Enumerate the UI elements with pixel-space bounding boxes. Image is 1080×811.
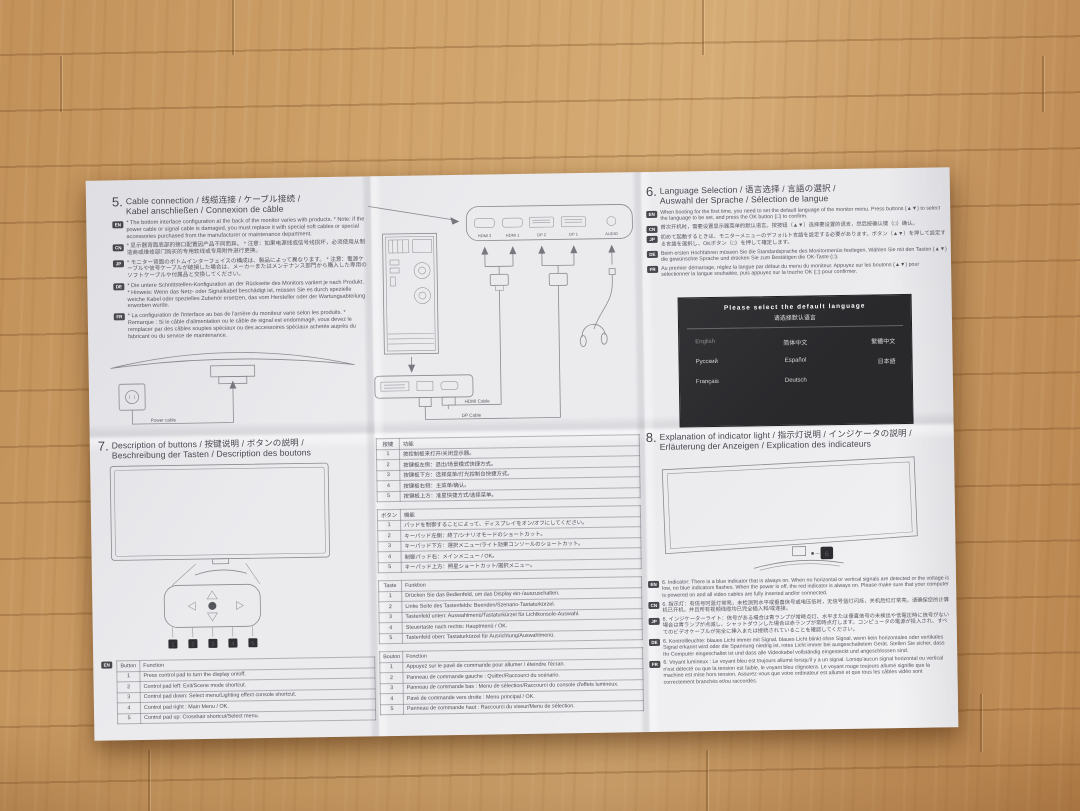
cell-number: 4 — [117, 703, 140, 714]
up-arrows — [481, 245, 615, 275]
plank-joint — [702, 0, 704, 55]
lang-badge-jp: JP — [649, 617, 660, 624]
section-description-of-buttons: 7. Description of buttons / 按键说明 / ボタンの説… — [98, 436, 377, 736]
pad-up-arrow-icon — [207, 591, 217, 599]
lang-badge-jp: JP — [113, 260, 124, 267]
paragraph-text: * The bottom interface configuration at … — [126, 216, 366, 240]
cell-number: 3 — [117, 692, 140, 703]
photo-of-manual-on-wood-floor: 5. Cable connection / 线缆连接 / ケーブル接続 / Ka… — [0, 0, 1080, 811]
monitor-with-indicator-drawing: 6 — [646, 451, 948, 574]
pad-center-button-icon — [208, 602, 216, 610]
monitor-screen-outline — [662, 457, 917, 554]
paragraph-text: * モニター背面のボトムインターフェイスの構成は、製品によって異なります。 * … — [127, 256, 367, 280]
paragraph-text: 6. インジケーターライト：信号がある場合は青ランプが常時点灯、水平または垂直信… — [663, 612, 951, 636]
section-title-line2: Kabel anschließen / Connexion de câble — [126, 204, 284, 216]
instruction-leaflet: 5. Cable connection / 线缆连接 / ケーブル接続 / Ka… — [86, 167, 959, 741]
up-arrow-icon — [229, 380, 236, 388]
paragraph-text: 6. 指示灯：有信号时蓝灯常亮，未检测到水平或垂直信号或电压低时，无信号蓝灯闪烁… — [662, 597, 950, 614]
hdmi2-port-icon — [474, 218, 494, 227]
language-option-german: Deutsch — [762, 377, 829, 384]
section-title-line2: Auswahl der Sprache / Sélection de langu… — [660, 193, 829, 206]
cell-number: 3 — [379, 612, 402, 623]
paragraph-fr: FRAu premier démarrage, réglez la langue… — [647, 261, 947, 279]
language-option-english: English — [695, 338, 762, 348]
plank-joint — [148, 750, 150, 811]
pc-tower-drawing — [383, 233, 439, 354]
language-option-japanese: 日本語 — [829, 356, 896, 366]
section-indicator-light: 8. Explanation of indicator light / 指示灯说… — [646, 427, 953, 728]
port-label-dp1: DP 1 — [569, 232, 579, 237]
section-title: 8. Explanation of indicator light / 指示灯说… — [646, 427, 948, 452]
port-strip-drawing: HDMI 2 HDMI 1 DP 2 DP 1 AUDIO — [466, 204, 633, 241]
paragraph-jp: JP6. インジケーターライト：信号がある場合は青ランプが常時点灯、水平または垂… — [649, 612, 951, 636]
paragraph-de: DE6. Kontrollleuchte: blaues Licht immer… — [649, 634, 951, 658]
lang-badge-cn: CN — [646, 226, 657, 233]
cell-number: 2 — [379, 601, 402, 612]
section-number: 7. — [98, 440, 109, 452]
paragraph-de: DEBeim ersten Hochfahren müssen Sie die … — [647, 246, 947, 264]
paragraph-text: 初めて起動するときは、モニターメニューのデフォルト言語を設定する必要があります。… — [661, 231, 947, 248]
hdmi-cable-plug-icon — [442, 397, 455, 405]
plank-joint — [706, 750, 708, 811]
paragraph-text: * 显示器背面底部的接口配置因产品不同而异。 * 注意：如果电源线或信号线损坏，… — [127, 240, 367, 258]
port-label-audio: AUDIO — [605, 231, 618, 236]
paragraph-text: Au premier démarrage, réglez la langue p… — [661, 261, 947, 278]
hdmi-cable-label: HDMI Cable — [465, 398, 491, 403]
wall-outlet-icon — [119, 384, 145, 410]
section-title: 7. Description of buttons / 按键说明 / ボタンの説… — [98, 436, 372, 460]
cell-number: 3 — [378, 541, 401, 552]
paragraph-cn: CN* 显示器背面底部的接口配置因产品不同而异。 * 注意：如果电源线或信号线损… — [113, 240, 367, 258]
language-option-simplified-chinese: 简体中文 — [762, 337, 829, 347]
language-options-grid: English 简体中文 繁體中文 Русский Español 日本語 Fr… — [679, 326, 912, 386]
lang-badge-de: DE — [649, 639, 660, 646]
lang-badge-de: DE — [113, 283, 124, 290]
paragraph-jp: JP* モニター背面のボトムインターフェイスの構成は、製品によって異なります。 … — [113, 256, 367, 281]
lang-badge-jp: JP — [647, 236, 658, 243]
section-language-selection: 6. Language Selection / 语言选择 / 言語の選択 / A… — [646, 181, 950, 426]
cell-number: 5 — [118, 713, 141, 724]
lang-badge-en: EN — [646, 210, 657, 217]
button-function-table-en: ButtonFunction 1Press control pad to tur… — [116, 656, 376, 724]
lang-badge-cn: CN — [113, 244, 124, 251]
dp1-port-icon — [561, 216, 585, 226]
monitor-stand-neck — [792, 547, 805, 556]
section-title: 5. Cable connection / 线缆连接 / ケーブル接続 / Ka… — [112, 192, 366, 216]
cell-number: 5 — [379, 633, 402, 644]
pad-right-arrow-icon — [236, 601, 243, 609]
section-number: 6. — [646, 186, 657, 198]
port-label-dp2: DP 2 — [537, 232, 547, 237]
audio-jack-icon — [607, 216, 616, 225]
control-pad-drawing — [164, 584, 261, 628]
col-header-button: Button — [117, 661, 140, 672]
dp-cable-plug-icon — [419, 397, 431, 406]
button-function-table-jp: ボタン機能 1パッドを制御することによって、ディスプレイをオン/オフにしてくださ… — [377, 505, 642, 573]
col-header: Taste — [378, 580, 401, 591]
connection-diagram-drawing: HDMI 2 HDMI 1 DP 2 DP 1 AUDIO — [368, 188, 645, 428]
language-option-russian: Русский — [696, 358, 763, 368]
hdmi-port-icon — [441, 381, 458, 389]
plank-joint — [980, 694, 982, 752]
button-function-table-de: TasteFunktion 1Drücken Sie das Bedienfel… — [378, 576, 643, 644]
cell-number: 5 — [377, 491, 400, 502]
pad-down-arrow-icon — [207, 613, 217, 621]
cell-number: 1 — [376, 449, 399, 460]
paragraph-en: EN* The bottom interface configuration a… — [112, 216, 366, 241]
dvi-port-icon — [381, 382, 409, 391]
lang-badge-fr: FR — [114, 314, 125, 321]
cell-number: 3 — [377, 470, 400, 481]
port-label-hdmi1: HDMI 1 — [506, 233, 520, 238]
section-title: 6. Language Selection / 语言选择 / 言語の選択 / A… — [646, 181, 946, 206]
plank-joint — [60, 56, 62, 112]
cell-number: 2 — [377, 459, 400, 470]
connection-diagram-panel: HDMI 2 HDMI 1 DP 2 DP 1 AUDIO — [368, 188, 645, 430]
monitor-top-view-power-drawing: Power cable — [104, 331, 362, 435]
cell-number: 4 — [380, 693, 403, 704]
paragraph-text: 6. Voyant lumineux : Le voyant bleu est … — [663, 656, 951, 686]
cell-number: 3 — [380, 683, 403, 694]
col-header: Bouton — [380, 651, 403, 662]
section-number: 8. — [646, 432, 657, 444]
lang-badge-en: EN — [101, 661, 112, 668]
paragraph-jp: JP初めて起動するときは、モニターメニューのデフォルト言語を設定する必要がありま… — [647, 231, 947, 249]
down-arrow-icon — [408, 365, 415, 373]
cell-number: 4 — [378, 551, 401, 562]
cell-number: 2 — [380, 672, 403, 683]
audio-plug-and-headphone-icon — [579, 269, 616, 347]
col-header: ボタン — [377, 509, 400, 520]
language-option-french: Français — [696, 378, 763, 385]
paragraph-de: DE* Die untere Schnittstellen-Konfigurat… — [113, 279, 367, 311]
section-cable-connection: 5. Cable connection / 线缆连接 / ケーブル接続 / Ka… — [112, 192, 370, 434]
cell-number: 4 — [377, 480, 400, 491]
cell-number: 5 — [378, 562, 401, 573]
lang-badge-en: EN — [648, 580, 659, 587]
language-option-traditional-chinese: 繁體中文 — [829, 336, 896, 346]
paragraph-text: * Die untere Schnittstellen-Konfiguratio… — [127, 279, 367, 310]
paragraph-fr: FR6. Voyant lumineux : Le voyant bleu es… — [649, 656, 951, 686]
pad-left-arrow-icon — [188, 602, 195, 610]
cell-number: 5 — [380, 704, 403, 715]
port-label-hdmi2: HDMI 2 — [478, 233, 492, 238]
cell-number: 1 — [379, 591, 402, 602]
lang-badge-en: EN — [112, 221, 123, 228]
hdmi1-port-icon — [502, 218, 522, 227]
dp-plug-icon — [549, 273, 569, 417]
power-cable-line — [132, 399, 233, 425]
pointer-arrow-icon — [450, 217, 459, 225]
monitor-stand-neck — [213, 559, 229, 564]
paragraph-text: 6. Indicator: There is a blue indicator … — [662, 575, 950, 599]
dp-port-icon — [417, 381, 433, 390]
paragraph-en: EN6. Indicator: There is a blue indicato… — [648, 575, 950, 599]
cell-number: 1 — [378, 520, 401, 531]
pad-number-callouts: 1 2 3 4 5 — [168, 626, 257, 648]
indicator-marker-label: 6 — [825, 551, 829, 558]
cell-number: 2 — [378, 530, 401, 541]
lang-badge-fr: FR — [649, 661, 660, 668]
paragraph-text: 6. Kontrollleuchte: blaues Licht immer m… — [663, 634, 951, 658]
section-title-line2: Erläuterung der Anzeigen / Explication d… — [660, 439, 871, 452]
dp2-port-icon — [529, 217, 553, 227]
cell-number: 1 — [380, 662, 403, 673]
cell-number: 1 — [117, 671, 140, 682]
localized-button-tables-panel: 按键功能 1按控制板来打开/关闭显示器。 2按键板左侧：退出/场景模式快捷方式。… — [376, 434, 645, 730]
section-title-line2: Beschreibung der Tasten / Description de… — [112, 447, 311, 460]
monitor-mount — [211, 365, 255, 377]
cell-number: 4 — [379, 622, 402, 633]
monitor-front-drawing — [110, 463, 329, 560]
button-function-table-cn: 按键功能 1按控制板来打开/关闭显示器。 2按键板左侧：退出/场景模式快捷方式。… — [376, 434, 641, 502]
monitor-front-and-control-pad-drawing: 1 2 3 4 5 — [98, 460, 375, 654]
paragraph-text: 首次开机时，需要设置显示器菜单的默认语言。按按钮（▲▼）选择要设置的语言，然后按… — [660, 221, 917, 231]
plank-joint — [232, 0, 234, 55]
dp-cable-label: DP Cable — [462, 413, 482, 418]
lang-badge-cn: CN — [648, 602, 659, 609]
plank-joint — [1042, 56, 1044, 112]
paragraph-cn: CN6. 指示灯：有信号时蓝灯常亮，未检测到水平或垂直信号或电压低时，无信号蓝灯… — [648, 597, 950, 615]
hdmi-plug-icon — [490, 274, 510, 404]
lang-badge-de: DE — [647, 251, 658, 258]
power-cable-label: Power cable — [151, 417, 177, 422]
lang-badge-fr: FR — [647, 266, 658, 273]
cell-number: 2 — [117, 682, 140, 693]
language-selection-screen: Please select the default language 请选择默认… — [678, 294, 914, 428]
button-function-table-fr: BoutonFonction 1Appuyez sur le pavé de c… — [379, 647, 644, 715]
paragraph-text: Beim ersten Hochfahren müssen Sie die St… — [661, 246, 947, 263]
language-option-spanish: Español — [762, 357, 829, 367]
indicator-light-dot — [811, 552, 814, 555]
monitor-stand-feet — [195, 570, 247, 576]
pc-port-strip-drawing — [375, 375, 473, 399]
section-number: 5. — [112, 196, 123, 208]
col-header: 按键 — [376, 438, 399, 449]
